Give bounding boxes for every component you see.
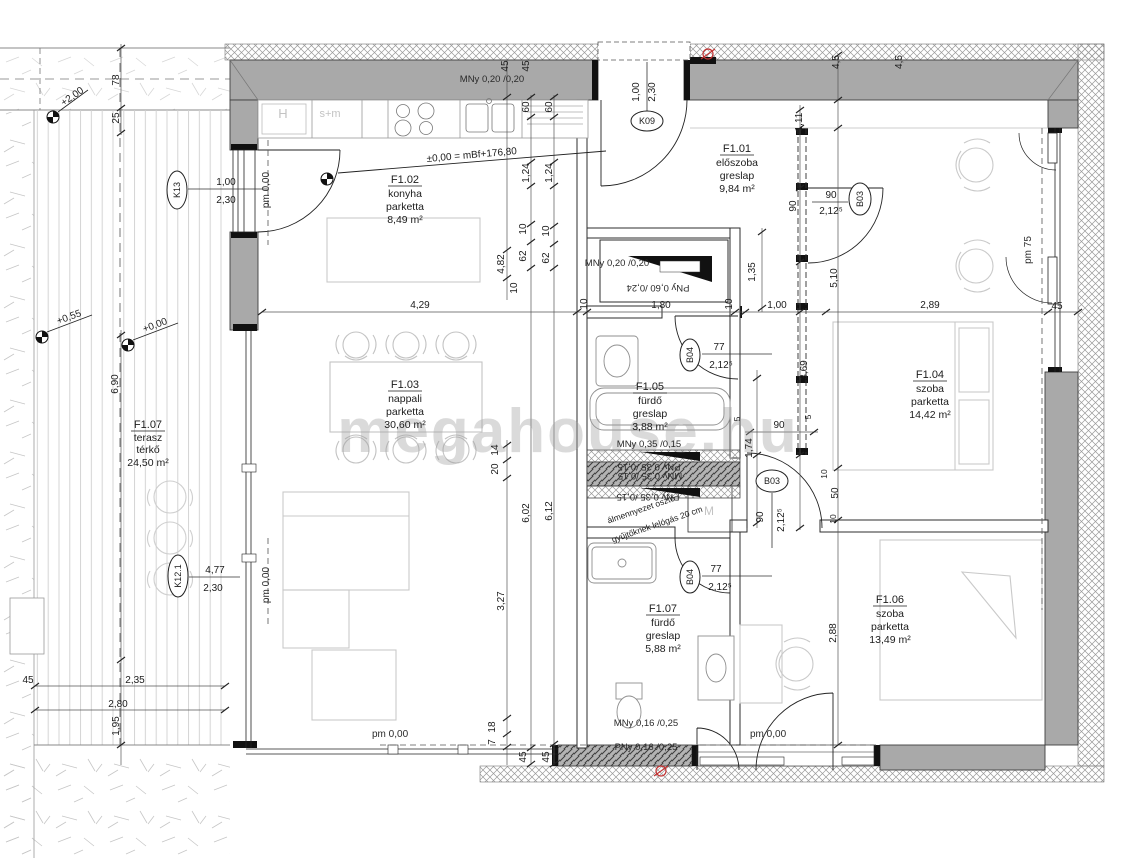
tag-code: B03: [764, 476, 780, 486]
room-area: 30,60 m²: [384, 419, 426, 431]
dim: 10: [579, 298, 590, 310]
dim: 4,29: [410, 300, 430, 311]
planter: [10, 598, 44, 654]
kitchen-island: [327, 218, 480, 282]
dim: 45: [521, 60, 532, 72]
dim: 6,12: [544, 501, 555, 521]
room-id: F1.07: [649, 603, 677, 615]
tag-width: 77: [710, 564, 722, 575]
tag-code: K12.1: [173, 564, 183, 588]
room-label-szoba2: F1.06 szoba parketta 13,49 m²: [869, 594, 911, 646]
dim: 6,02: [521, 503, 532, 523]
dim: 10: [819, 469, 829, 479]
door-b03-top: [808, 188, 883, 263]
level-main: ±0,00 = mBf+176,80: [321, 146, 606, 185]
tag-width: 4,77: [205, 565, 225, 576]
dim: 4,5: [894, 55, 905, 69]
dim: 45: [541, 751, 552, 763]
dim: 1,95: [111, 716, 122, 736]
dim: 25: [111, 112, 122, 124]
tag-height: 2,30: [203, 583, 223, 594]
floorplan-drawing: megahouse.hu F1.01 előszoba greslap 9,84…: [0, 0, 1127, 859]
room-label-eloszoba: F1.01 előszoba greslap 9,84 m²: [716, 143, 758, 195]
tag-height: 2,30: [216, 195, 236, 206]
room-name: szoba: [876, 608, 904, 620]
room-id: F1.02: [391, 174, 419, 186]
tag-b04-top: B04 77 2,12⁵: [680, 339, 772, 371]
oven-label: s+m: [319, 108, 340, 120]
dim: 3,27: [496, 591, 507, 611]
room-area: 9,84 m²: [719, 183, 755, 195]
fridge-label: H: [278, 106, 287, 121]
tag-height: 2,12⁵: [819, 206, 843, 217]
dim: 45: [500, 60, 511, 72]
tag-height: 2,12⁵: [709, 360, 733, 371]
dim: 18: [487, 721, 498, 733]
room-area: 14,42 m²: [909, 409, 951, 421]
room-name: konyha: [388, 188, 422, 200]
dim: 45: [22, 675, 34, 686]
dim: 60: [544, 101, 555, 113]
room-area: 3,88 m²: [632, 421, 668, 433]
dim: 20: [490, 463, 501, 475]
tag-code: B04: [685, 569, 695, 585]
tag-width: 77: [713, 342, 725, 353]
sofa-group: [283, 492, 409, 720]
room-name: előszoba: [716, 157, 758, 169]
dim: 90: [773, 420, 785, 431]
dim: 78: [111, 74, 122, 86]
dim: 6,90: [110, 374, 121, 394]
tag-b03-mid: B03 90 2,12⁵: [755, 470, 788, 548]
room-label-furdo2: F1.07 fürdő greslap 5,88 m²: [645, 603, 681, 655]
room-name: terasz: [134, 432, 163, 444]
room-finish: parketta: [386, 406, 424, 418]
dim: 62: [518, 250, 529, 262]
dim: 7: [487, 739, 498, 745]
room-area: 13,49 m²: [869, 634, 911, 646]
pm-label-window: pm 75: [1023, 236, 1034, 264]
dim: 10: [541, 225, 552, 237]
room-finish: térkő: [136, 444, 160, 456]
vent-note-1: MNy 0,20 /0,20: [585, 258, 649, 269]
dim: 1,35: [747, 262, 758, 282]
room-finish: greslap: [720, 170, 755, 182]
dim: 10: [509, 282, 520, 294]
terrace-deck: [10, 48, 230, 745]
washer-label: M: [704, 504, 714, 518]
vent-note-8: PNy 0,16 /0,25: [615, 742, 678, 753]
vent-note-5: MNy 0,35 /0,15: [618, 470, 682, 481]
pm-label-k13: pm 0,00: [261, 171, 272, 208]
room-finish: greslap: [633, 408, 668, 420]
room-area: 24,50 m²: [127, 457, 169, 469]
dim: 1,80: [651, 300, 671, 311]
dim: 1,74: [744, 438, 755, 458]
room-label-szoba1: F1.04 szoba parketta 14,42 m²: [909, 369, 951, 421]
tag-k09: K09 1,00 2,30: [631, 62, 663, 131]
dim: 1,24: [544, 163, 555, 183]
pm-label-bottom-right: pm 0,00: [750, 729, 787, 740]
tag-height: 2,30: [647, 82, 658, 102]
dim: 62: [541, 252, 552, 264]
dim: 14: [490, 444, 501, 456]
tag-height: 2,12⁵: [776, 508, 787, 532]
tag-width: 90: [825, 190, 837, 201]
room-name: fürdő: [638, 395, 662, 407]
tag-width: 1,00: [631, 82, 642, 102]
floorplan-page: megahouse.hu F1.01 előszoba greslap 9,84…: [0, 0, 1127, 859]
dim: 2,80: [108, 699, 128, 710]
dim: 1,00: [767, 300, 787, 311]
dim: 90: [788, 200, 799, 212]
tag-code: B04: [685, 347, 695, 363]
room-name: fürdő: [651, 617, 675, 629]
room-name: nappali: [388, 393, 422, 405]
room-label-konyha: F1.02 konyha parketta 8,49 m²: [386, 174, 424, 226]
dim: 1,24: [521, 163, 532, 183]
pm-label-k121: pm 0,00: [261, 566, 272, 603]
dim: 5,10: [829, 268, 840, 288]
dim: 3,69: [799, 360, 810, 380]
dim: 10: [828, 514, 838, 524]
room-id: F1.06: [876, 594, 904, 606]
tag-width: 1,00: [216, 177, 236, 188]
room-id: F1.01: [723, 143, 751, 155]
dim: 50: [830, 487, 841, 499]
room-finish: greslap: [646, 630, 681, 642]
dim: 1,11: [794, 112, 805, 131]
vent-note-7: MNy 0,16 /0,25: [614, 718, 678, 729]
dim: 2,89: [920, 300, 940, 311]
room-finish: parketta: [871, 621, 909, 633]
room-id: F1.04: [916, 369, 944, 381]
dim-right-b: 4,5 4,5 5,10 10 50 10 2,88: [819, 55, 905, 643]
tag-code: K13: [172, 182, 182, 198]
tag-height: 2,12⁵: [708, 582, 732, 593]
vent-note-2: PNy 0,60 /0,24: [627, 282, 690, 293]
room-id: F1.07: [134, 419, 162, 431]
kitchen-counter: [258, 99, 588, 139]
dim: 5: [803, 414, 813, 419]
tag-code: K09: [639, 116, 655, 126]
tag-code: B03: [855, 191, 865, 207]
vent-note-3: MNy 0,35 /0,15: [617, 439, 681, 450]
room-name: szoba: [916, 383, 944, 395]
dim: 10: [724, 298, 735, 310]
vent-note-0: MNy 0,20 /0,20: [460, 74, 524, 85]
dim: 10: [518, 223, 529, 235]
dim: 45: [1051, 301, 1063, 312]
room-id: F1.03: [391, 379, 419, 391]
dim: 2,88: [828, 623, 839, 643]
dim: 4,82: [496, 254, 507, 274]
entrance-landing: [598, 42, 690, 60]
dim: 4,5: [831, 55, 842, 69]
dim: 45: [518, 751, 529, 763]
room-finish: parketta: [911, 396, 949, 408]
pm-label-bottom-left: pm 0,00: [372, 729, 409, 740]
dim: 60: [521, 101, 532, 113]
dim: 5: [732, 416, 742, 421]
dim: 2,35: [125, 675, 145, 686]
tag-width: 90: [755, 511, 766, 523]
room-area: 8,49 m²: [387, 214, 423, 226]
room-finish: parketta: [386, 201, 424, 213]
tag-b04-bottom: B04 77 2,12⁵: [680, 561, 772, 593]
room-area: 5,88 m²: [645, 643, 681, 655]
room-id: F1.05: [636, 381, 664, 393]
